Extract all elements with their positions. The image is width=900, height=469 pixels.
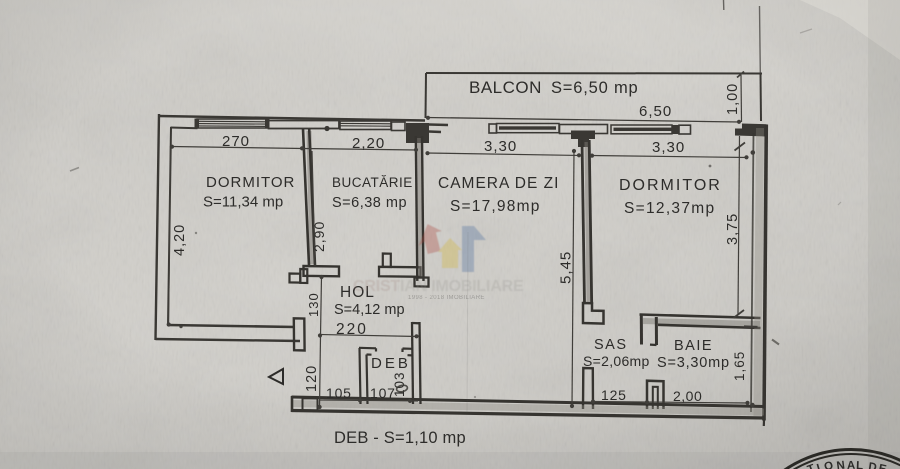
svg-text:S=11,34 mp: S=11,34 mp: [203, 194, 283, 211]
svg-text:2,20: 2,20: [352, 135, 385, 152]
svg-text:S=6,38 mp: S=6,38 mp: [332, 195, 407, 211]
svg-text:D: D: [868, 461, 878, 469]
svg-text:DORMITOR: DORMITOR: [206, 174, 295, 191]
svg-text:1,00: 1,00: [725, 83, 741, 115]
svg-text:DORMITOR: DORMITOR: [619, 177, 722, 194]
svg-text:BALCON: BALCON: [469, 78, 542, 97]
svg-text:S=3,30mp: S=3,30mp: [657, 355, 730, 371]
svg-text:L: L: [856, 460, 863, 469]
svg-text:107: 107: [370, 385, 396, 401]
svg-text:E: E: [877, 463, 887, 469]
svg-text:1998 - 2018 IMOBILIARE: 1998 - 2018 IMOBILIARE: [408, 295, 485, 301]
svg-text:220: 220: [336, 321, 368, 338]
svg-text:125: 125: [601, 387, 627, 403]
svg-text:3,75: 3,75: [725, 213, 741, 245]
svg-text:A: A: [847, 460, 856, 469]
svg-text:CAMERA DE ZI: CAMERA DE ZI: [438, 175, 559, 192]
svg-text:BAIE: BAIE: [674, 338, 713, 354]
svg-text:CRISTIAN IMOBILIARE: CRISTIAN IMOBILIARE: [353, 278, 524, 295]
svg-text:BUCATĂRIE: BUCATĂRIE: [332, 175, 413, 190]
svg-text:DEB: DEB: [371, 355, 411, 372]
svg-text:S=4,12 mp: S=4,12 mp: [334, 302, 405, 318]
svg-text:5,45: 5,45: [558, 251, 575, 284]
svg-text:S=17,98mp: S=17,98mp: [450, 198, 541, 215]
svg-text:130: 130: [306, 292, 321, 317]
svg-text:SAS: SAS: [594, 337, 628, 353]
svg-text:S=2,06mp: S=2,06mp: [583, 353, 650, 369]
svg-text:DEB - S=1,10 mp: DEB - S=1,10 mp: [334, 429, 466, 447]
svg-text:3,30: 3,30: [484, 138, 517, 155]
svg-text:4,20: 4,20: [172, 224, 188, 256]
svg-text:1,65: 1,65: [732, 351, 747, 381]
svg-text:N: N: [836, 460, 846, 469]
svg-text:S=12,37mp: S=12,37mp: [624, 200, 715, 217]
svg-text:6,50: 6,50: [639, 103, 672, 120]
svg-text:105: 105: [326, 385, 352, 401]
svg-text:2,00: 2,00: [673, 388, 702, 404]
svg-text:120: 120: [304, 365, 320, 392]
svg-text:3,30: 3,30: [652, 139, 685, 156]
svg-text:270: 270: [222, 133, 250, 150]
svg-text:S=6,50 mp: S=6,50 mp: [551, 79, 638, 97]
svg-text:2,90: 2,90: [311, 221, 327, 252]
